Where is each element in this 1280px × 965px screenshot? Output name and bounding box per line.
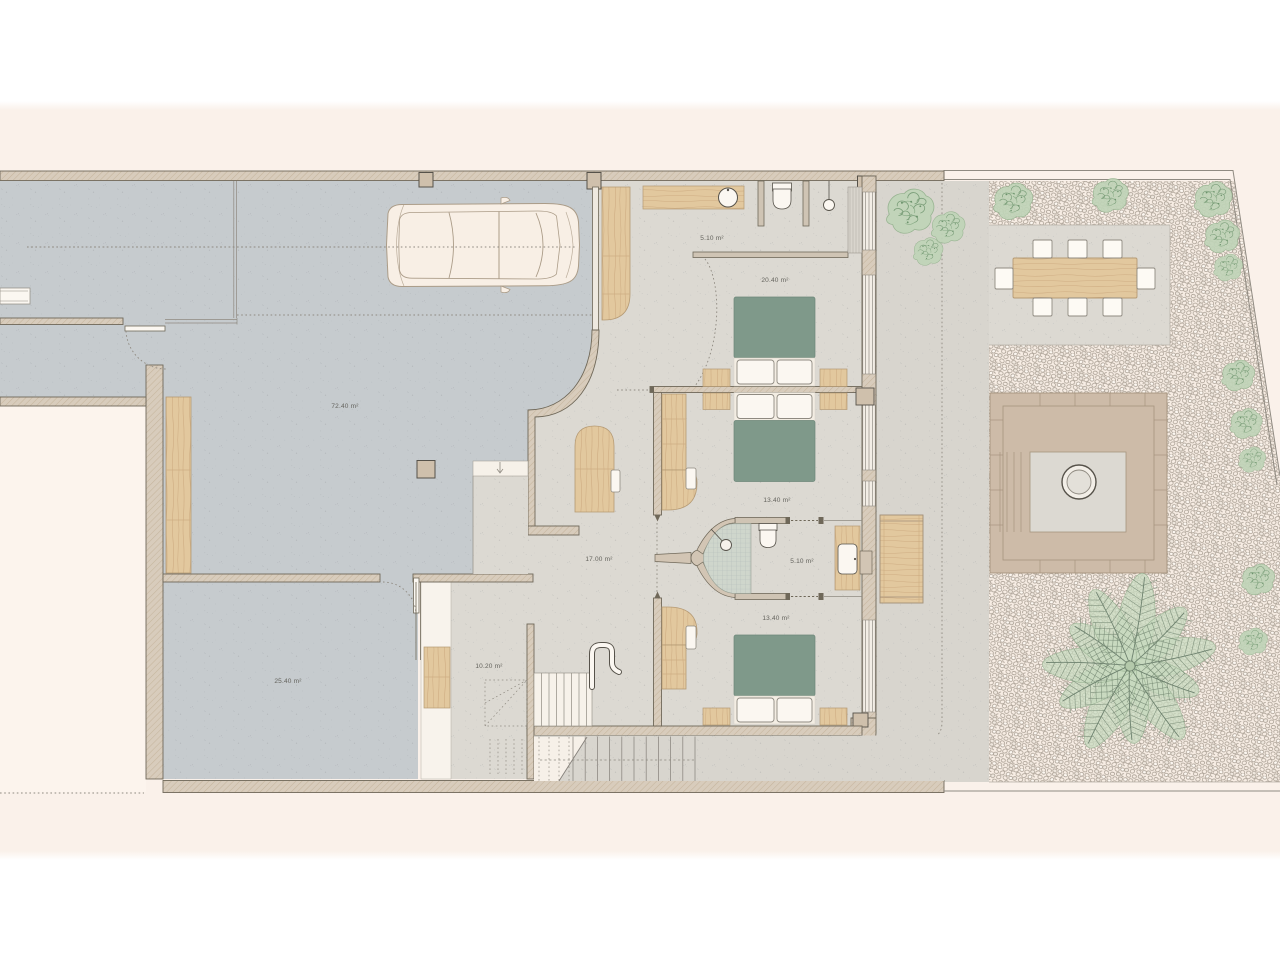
svg-text:5.10 m²: 5.10 m²: [790, 558, 814, 565]
svg-text:13.40 m²: 13.40 m²: [762, 615, 790, 622]
svg-text:10.20 m²: 10.20 m²: [475, 663, 503, 670]
svg-text:25.40 m²: 25.40 m²: [274, 678, 302, 685]
svg-text:17.00 m²: 17.00 m²: [585, 556, 613, 563]
svg-text:5.10 m²: 5.10 m²: [700, 235, 724, 242]
svg-text:20.40 m²: 20.40 m²: [761, 277, 789, 284]
svg-text:13.40 m²: 13.40 m²: [763, 497, 791, 504]
svg-text:72.40 m²: 72.40 m²: [331, 403, 359, 410]
